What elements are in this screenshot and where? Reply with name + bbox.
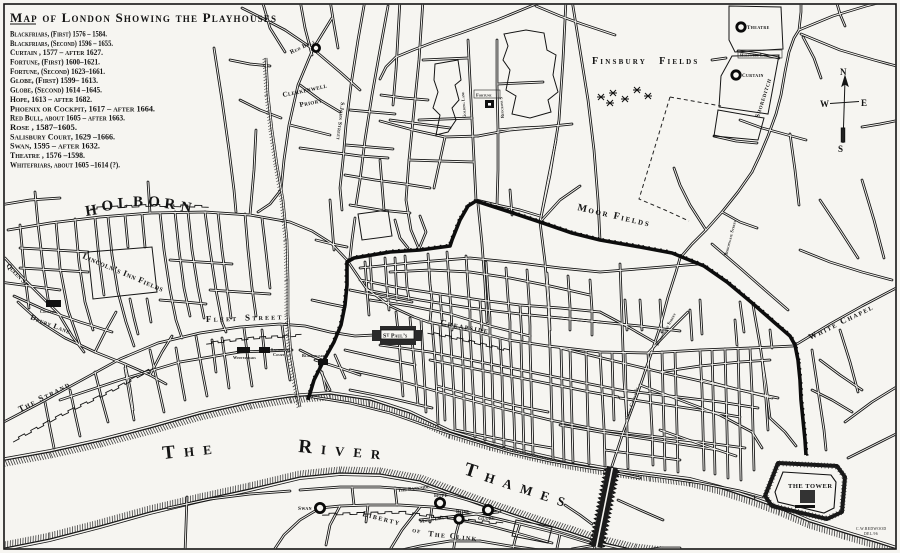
svg-text:Blackfriars: Blackfriars: [302, 353, 325, 358]
svg-text:Swan: Swan: [298, 506, 312, 512]
svg-text:Globe: Globe: [478, 516, 495, 522]
svg-text:N: N: [840, 67, 847, 77]
svg-text:O: O: [101, 198, 114, 215]
svg-text:Blackfriars, (Second) 1596 – 1: Blackfriars, (Second) 1596 – 1655.: [10, 39, 113, 48]
svg-text:Rose , 1587–1605.: Rose , 1587–1605.: [10, 123, 77, 132]
svg-text:Curtain: Curtain: [742, 74, 764, 79]
svg-text:W: W: [820, 99, 829, 109]
svg-text:S: S: [838, 144, 843, 154]
svg-text:E: E: [861, 98, 867, 108]
svg-text:Whitefriars, about 1605 –1614: Whitefriars, about 1605 –1614 (?).: [10, 160, 120, 169]
svg-text:Red Bull, about 1605 – after 1: Red Bull, about 1605 – after 1663.: [10, 114, 125, 123]
svg-text:Finsbury Fields: Finsbury Fields: [592, 56, 700, 67]
svg-text:L: L: [117, 195, 128, 212]
svg-text:Hope, 1613 – after 1682.: Hope, 1613 – after 1682.: [10, 95, 92, 104]
svg-text:C.W.REDWOOD: C.W.REDWOOD: [856, 527, 886, 531]
svg-text:Map of London Showing the Play: Map of London Showing the Playhouses: [10, 10, 277, 25]
svg-text:B: B: [133, 194, 143, 210]
svg-text:Fortune, (First) 1600–1621.: Fortune, (First) 1600–1621.: [10, 58, 100, 67]
svg-text:Whitefriars: Whitefriars: [233, 355, 256, 360]
svg-text:Cockpit: Cockpit: [40, 309, 55, 314]
svg-text:O: O: [148, 194, 160, 211]
svg-text:Curtain , 1577 – after 1627.: Curtain , 1577 – after 1627.: [10, 48, 103, 57]
svg-text:Fortune, (Second) 1623–1661.: Fortune, (Second) 1623–1661.: [10, 67, 105, 76]
svg-text:Phoenix or Cockpit, 1617 – aft: Phoenix or Cockpit, 1617 – after 1664.: [10, 104, 155, 113]
svg-text:DEL.96: DEL.96: [864, 532, 878, 536]
svg-text:Theatre , 1576 –1598.: Theatre , 1576 –1598.: [10, 151, 85, 160]
svg-text:THE TOWER: THE TOWER: [788, 483, 833, 490]
svg-text:Globe, (First) 1599– 1613.: Globe, (First) 1599– 1613.: [10, 76, 98, 85]
svg-text:Swan, 1595 – after 1632.: Swan, 1595 – after 1632.: [10, 142, 100, 151]
svg-text:Fortune: Fortune: [476, 92, 492, 97]
svg-text:Holywell Lane: Holywell Lane: [740, 53, 769, 58]
svg-text:Court: Court: [273, 352, 285, 357]
svg-text:Salisbury Court, 1629 –1666.: Salisbury Court, 1629 –1666.: [10, 132, 115, 141]
svg-text:Globe, (Second) 1614 –1645.: Globe, (Second) 1614 –1645.: [10, 86, 102, 95]
svg-text:Theatre: Theatre: [747, 26, 770, 31]
svg-text:R: R: [164, 196, 177, 213]
svg-text:Blackfriars, (First) 1576 – 15: Blackfriars, (First) 1576 – 1584.: [10, 30, 107, 39]
